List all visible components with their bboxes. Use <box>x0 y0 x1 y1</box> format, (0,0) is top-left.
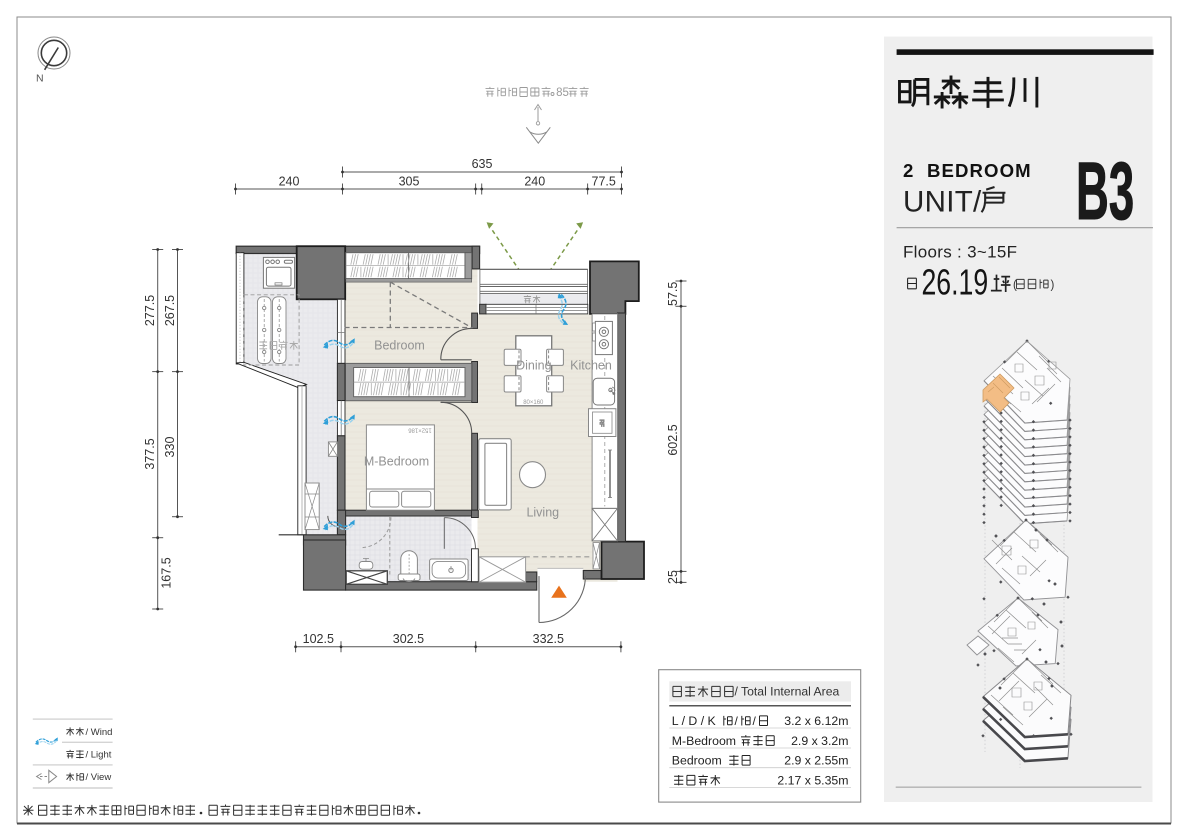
svg-text:/ Total Internal Area: / Total Internal Area <box>735 685 840 699</box>
svg-text:2.9 x 3.2m: 2.9 x 3.2m <box>791 734 848 748</box>
svg-text:Kitchen: Kitchen <box>570 358 612 372</box>
svg-text:80×160: 80×160 <box>523 400 544 406</box>
svg-text:L / D / K: L / D / K <box>672 714 717 728</box>
svg-text:267.5: 267.5 <box>163 295 177 326</box>
svg-text:M-Bedroom: M-Bedroom <box>364 455 429 469</box>
svg-text:602.5: 602.5 <box>666 424 680 455</box>
svg-text:2 BEDROOM: 2 BEDROOM <box>903 160 1032 181</box>
svg-text:167.5: 167.5 <box>160 557 174 588</box>
svg-text:102.5: 102.5 <box>303 632 334 646</box>
svg-text:M-Bedroom: M-Bedroom <box>672 734 736 748</box>
svg-text:/ View: / View <box>86 772 112 783</box>
svg-text:UNIT/: UNIT/ <box>903 186 982 219</box>
svg-text:77.5: 77.5 <box>592 175 616 189</box>
svg-text:Floors : 3~15F: Floors : 3~15F <box>903 243 1017 262</box>
svg-text:): ) <box>1051 280 1055 292</box>
svg-text:26.19: 26.19 <box>922 262 989 303</box>
svg-text:N: N <box>36 73 44 85</box>
svg-text:Bedroom: Bedroom <box>672 754 722 768</box>
svg-text:2.9 x 2.55m: 2.9 x 2.55m <box>784 754 848 768</box>
svg-text:/ Wind: / Wind <box>86 727 113 738</box>
svg-text:/ Light: / Light <box>86 750 112 761</box>
svg-text:330: 330 <box>163 437 177 458</box>
svg-text:85: 85 <box>556 87 569 99</box>
svg-text:Bedroom: Bedroom <box>374 339 425 353</box>
svg-text:57.5: 57.5 <box>666 282 680 306</box>
svg-text:152×186: 152×186 <box>408 427 432 433</box>
svg-text:B3: B3 <box>1076 146 1134 238</box>
svg-text:240: 240 <box>524 175 545 189</box>
svg-text:302.5: 302.5 <box>393 632 424 646</box>
svg-text:RF: RF <box>598 419 604 427</box>
svg-text:332.5: 332.5 <box>533 632 564 646</box>
svg-text:2.17 x 5.35m: 2.17 x 5.35m <box>777 774 848 788</box>
svg-text:635: 635 <box>472 157 493 171</box>
svg-text:305: 305 <box>399 175 420 189</box>
svg-text:3.2 x 6.12m: 3.2 x 6.12m <box>784 714 848 728</box>
svg-text:240: 240 <box>279 175 300 189</box>
svg-text:25: 25 <box>666 570 680 584</box>
svg-text:277.5: 277.5 <box>143 295 157 326</box>
svg-text:377.5: 377.5 <box>143 438 157 469</box>
svg-text:Dining: Dining <box>516 358 551 372</box>
svg-text:Living: Living <box>526 506 559 520</box>
